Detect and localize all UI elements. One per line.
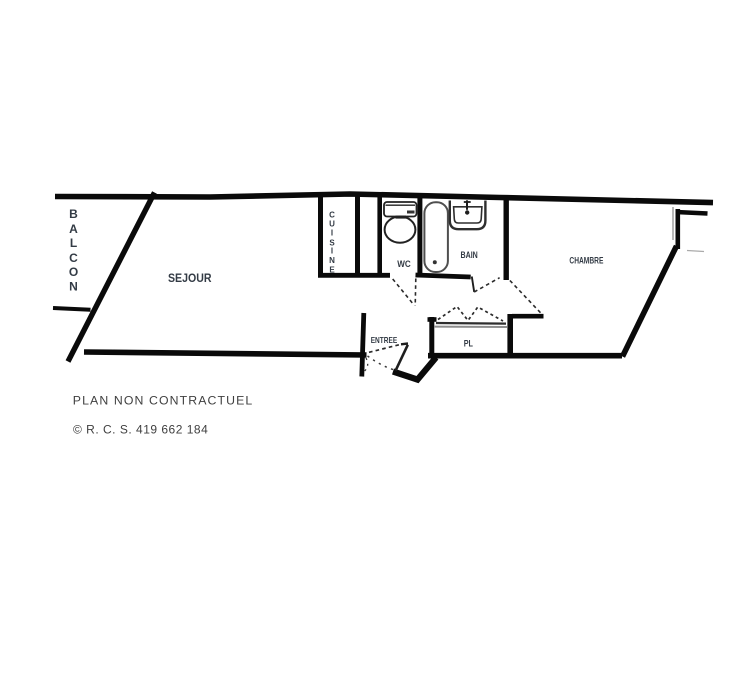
svg-text:BAIN: BAIN	[461, 250, 478, 261]
svg-text:U: U	[329, 220, 335, 229]
svg-text:I: I	[331, 247, 333, 256]
svg-text:N: N	[329, 256, 335, 265]
svg-text:O: O	[69, 265, 78, 279]
svg-text:PLAN NON CONTRACTUEL: PLAN NON CONTRACTUEL	[73, 394, 254, 408]
svg-text:N: N	[69, 280, 78, 294]
svg-text:C: C	[69, 251, 78, 265]
svg-text:ENTREE: ENTREE	[371, 335, 398, 345]
svg-text:SEJOUR: SEJOUR	[168, 271, 212, 285]
svg-text:C: C	[329, 210, 335, 219]
svg-text:PL: PL	[464, 339, 474, 349]
svg-text:L: L	[70, 236, 77, 250]
svg-text:E: E	[329, 266, 335, 275]
svg-text:© R. C. S. 419 662 184: © R. C. S. 419 662 184	[73, 423, 208, 437]
svg-text:B: B	[69, 207, 78, 221]
svg-text:A: A	[69, 222, 78, 236]
svg-text:I: I	[331, 228, 333, 237]
svg-text:CHAMBRE: CHAMBRE	[569, 255, 603, 265]
svg-text:WC: WC	[397, 259, 411, 270]
